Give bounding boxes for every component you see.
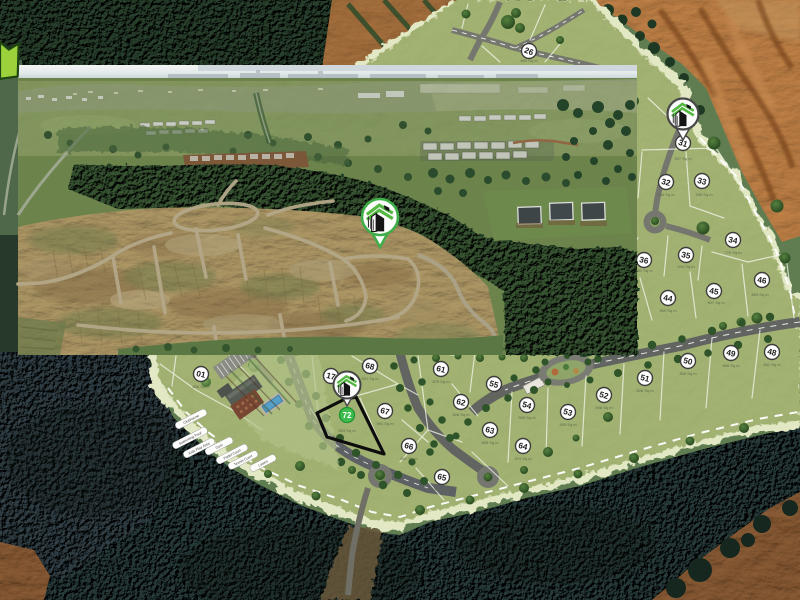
svg-text:72: 72 (343, 411, 352, 420)
svg-text:509 Sq m: 509 Sq m (559, 422, 577, 427)
svg-text:841 Sq m: 841 Sq m (763, 362, 781, 367)
svg-text:806 Sq m: 806 Sq m (679, 371, 697, 376)
svg-text:591 Sq m: 591 Sq m (376, 421, 394, 426)
svg-text:944 Sq m: 944 Sq m (677, 264, 695, 269)
svg-text:474 Sq m: 474 Sq m (514, 456, 532, 461)
svg-text:508 Sq m: 508 Sq m (452, 412, 470, 417)
svg-text:508 Sq m: 508 Sq m (485, 394, 503, 399)
svg-text:893 Sq m: 893 Sq m (751, 292, 769, 297)
svg-text:868 Sq m: 868 Sq m (722, 363, 740, 368)
svg-text:553 Sq m: 553 Sq m (338, 428, 356, 433)
svg-text:511 Sq m: 511 Sq m (434, 487, 451, 492)
svg-text:508 Sq m: 508 Sq m (518, 415, 536, 420)
svg-text:981 Sq m: 981 Sq m (635, 268, 653, 273)
svg-text:591 Sq m: 591 Sq m (361, 376, 379, 381)
svg-text:907 Sq m: 907 Sq m (707, 300, 725, 305)
svg-text:806 Sq m: 806 Sq m (192, 384, 210, 389)
svg-text:936 Sq m: 936 Sq m (695, 192, 713, 197)
svg-text:655 Sq m: 655 Sq m (481, 440, 499, 445)
svg-text:878 Sq m: 878 Sq m (432, 379, 450, 384)
svg-text:508 Sq m: 508 Sq m (636, 388, 654, 393)
svg-text:776 Sq m: 776 Sq m (724, 250, 742, 255)
svg-text:969 Sq m: 969 Sq m (659, 308, 677, 313)
svg-text:508 Sq m: 508 Sq m (595, 405, 613, 410)
svg-text:907 Sq m: 907 Sq m (674, 156, 692, 161)
svg-text:591 Sq m: 591 Sq m (400, 456, 418, 461)
svg-text:934 Sq m: 934 Sq m (657, 192, 675, 197)
